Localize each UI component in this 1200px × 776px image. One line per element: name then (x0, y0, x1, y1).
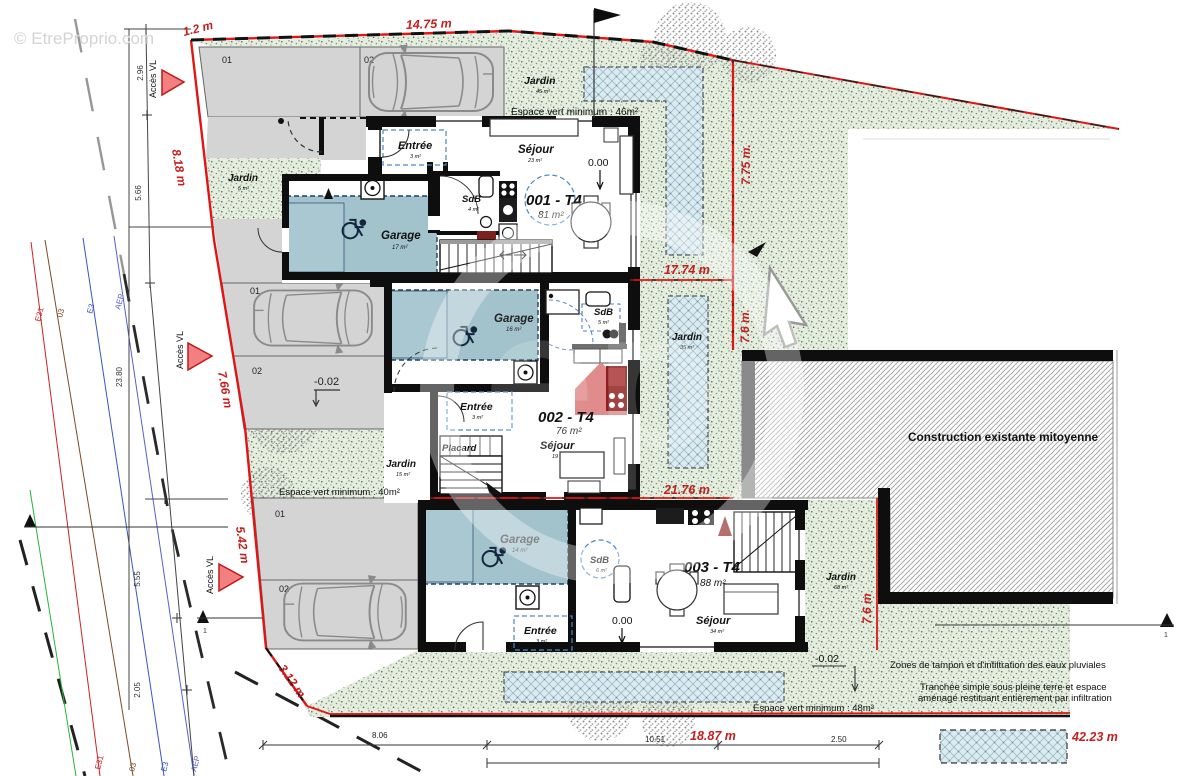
svg-text:23.80: 23.80 (115, 366, 124, 387)
svg-text:Espace vert minimum : 46m²: Espace vert minimum : 46m² (511, 107, 639, 118)
svg-text:1.2 m: 1.2 m (181, 18, 214, 39)
svg-text:-0.02: -0.02 (314, 376, 339, 388)
svg-text:2.96: 2.96 (136, 65, 145, 81)
svg-text:Entrée: Entrée (524, 625, 557, 637)
svg-text:10.51: 10.51 (645, 735, 666, 744)
svg-text:01: 01 (222, 55, 232, 65)
svg-text:Accès VL: Accès VL (148, 60, 158, 98)
svg-text:03: 03 (127, 761, 138, 772)
svg-text:Séjour: Séjour (696, 615, 731, 627)
svg-text:7.75 m.: 7.75 m. (739, 144, 753, 185)
svg-text:68 m²: 68 m² (834, 585, 848, 591)
svg-text:E3: E3 (159, 760, 170, 772)
svg-text:Accès VL: Accès VL (205, 556, 215, 594)
svg-text:Jardin: Jardin (826, 572, 856, 583)
svg-text:34 m²: 34 m² (710, 629, 724, 635)
svg-text:Jardin: Jardin (228, 173, 258, 184)
svg-text:1: 1 (203, 628, 207, 635)
svg-text:Jardin: Jardin (524, 75, 556, 87)
svg-text:42.23 m: 42.23 m (1071, 730, 1118, 744)
svg-text:03: 03 (55, 307, 66, 318)
svg-text:0.00: 0.00 (612, 615, 633, 627)
svg-text:02: 02 (252, 366, 262, 376)
svg-text:14.75 m: 14.75 m (406, 16, 452, 32)
svg-text:7.6 m: 7.6 m (860, 593, 874, 624)
svg-text:E31: E31 (33, 306, 46, 323)
svg-text:4 m²: 4 m² (468, 207, 479, 213)
svg-text:-0.02: -0.02 (815, 653, 839, 665)
svg-text:3 m²: 3 m² (410, 154, 421, 160)
svg-text:E3: E3 (85, 302, 96, 314)
svg-text:0.00: 0.00 (588, 157, 609, 169)
svg-text:1: 1 (1164, 632, 1168, 639)
svg-text:ep: ep (483, 268, 716, 491)
svg-text:Zones de tampon et d'infiltrat: Zones de tampon et d'infiltration des ea… (890, 660, 1106, 671)
svg-text:3 m²: 3 m² (536, 639, 547, 645)
svg-text:E31: E31 (93, 754, 106, 771)
svg-text:01: 01 (275, 509, 285, 519)
svg-text:8.06: 8.06 (372, 731, 388, 740)
svg-text:5 m²: 5 m² (238, 186, 249, 192)
svg-text:23 m²: 23 m² (527, 158, 542, 164)
svg-text:7.66 m: 7.66 m (215, 370, 235, 410)
svg-text:88 m²: 88 m² (700, 578, 726, 589)
svg-text:15 m²: 15 m² (396, 472, 410, 478)
svg-text:Séjour: Séjour (518, 144, 554, 156)
svg-text:Tranchée simple sous pleine te: Tranchée simple sous pleine terre et esp… (920, 682, 1107, 693)
svg-text:17 m²: 17 m² (392, 245, 408, 251)
svg-text:Accès VL: Accès VL (175, 331, 185, 369)
svg-text:© EtreProprio.com: © EtreProprio.com (14, 29, 154, 48)
svg-text:2.50: 2.50 (831, 735, 847, 744)
svg-text:Jardin: Jardin (386, 459, 416, 470)
svg-text:2.05: 2.05 (133, 682, 142, 698)
svg-text:8.18 m: 8.18 m (169, 148, 189, 188)
svg-text:01: 01 (250, 286, 260, 296)
svg-text:45 m²: 45 m² (536, 89, 550, 95)
svg-text:aménagé restituant entièrement: aménagé restituant entièrement par infil… (918, 693, 1112, 704)
svg-text:Espace vert minimum : 48m²: Espace vert minimum : 48m² (753, 703, 874, 714)
svg-text:5.55: 5.55 (133, 571, 142, 587)
svg-text:5.66: 5.66 (134, 185, 143, 201)
svg-text:02: 02 (279, 584, 289, 594)
svg-text:SdB: SdB (462, 194, 481, 205)
svg-text:Construction existante mitoyen: Construction existante mitoyenne (908, 430, 1099, 444)
svg-text:Garage: Garage (381, 230, 421, 242)
svg-text:5.42 m: 5.42 m (233, 525, 252, 564)
svg-text:3 m²: 3 m² (472, 415, 483, 421)
svg-text:Espace vert minimum : 40m²: Espace vert minimum : 40m² (279, 487, 400, 498)
svg-text:18.87 m: 18.87 m (690, 729, 736, 743)
